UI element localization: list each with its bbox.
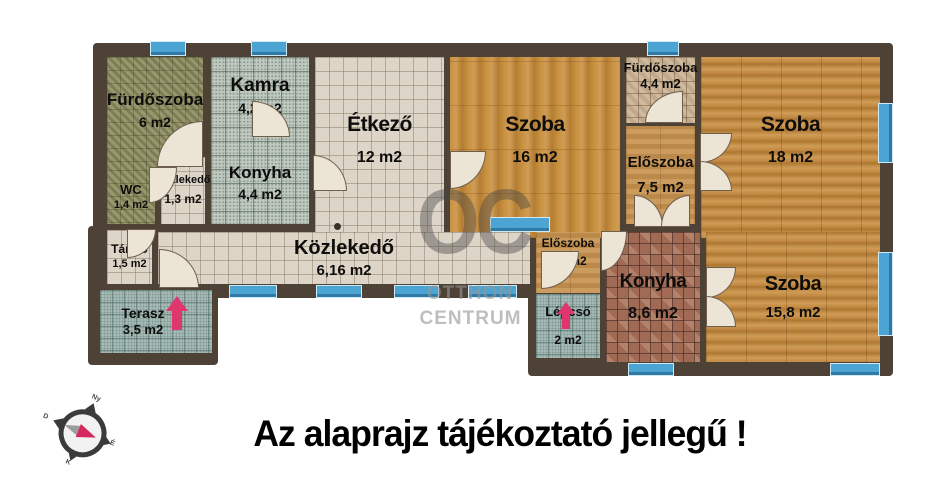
room-area: 6,16 m2 <box>316 262 371 279</box>
window-bedroom158-right <box>878 252 893 336</box>
room-label: Szoba <box>761 113 820 137</box>
window-corridor-2 <box>316 285 362 298</box>
room-area: 3,5 m2 <box>123 323 163 338</box>
room-label: Előszoba <box>628 154 694 171</box>
door-hinge-dot <box>334 223 341 230</box>
room-label: Étkező <box>347 113 412 137</box>
room-area: 18 m2 <box>768 149 813 167</box>
room-label: WC <box>120 183 142 198</box>
room-wc: WC 1,4 m2 <box>107 170 155 224</box>
window-bathroom44-top <box>647 41 679 56</box>
room-label: Előszoba <box>542 237 595 251</box>
compass-label-left: D <box>42 413 49 421</box>
room-area: 1,3 m2 <box>164 193 201 207</box>
room-area: 16 m2 <box>512 149 557 167</box>
room-label: Konyha <box>229 163 291 183</box>
room-area: 1,5 m2 <box>112 258 146 271</box>
room-label: Terasz <box>121 305 164 321</box>
window-bedroom158-bottom <box>830 363 880 376</box>
room-area: 7,5 m2 <box>637 179 684 196</box>
room-area: 15,8 m2 <box>765 304 820 321</box>
room-area: 8,6 m2 <box>628 305 678 323</box>
window-bedroom16-bottom <box>490 217 550 232</box>
window-corridor-4 <box>468 285 517 298</box>
room-area: 4,4 m2 <box>640 77 680 92</box>
watermark-line2: CENTRUM <box>398 308 543 330</box>
room-label: Szoba <box>765 273 821 296</box>
room-label: Fürdőszoba <box>624 61 698 76</box>
floorplan-page: Fürdőszoba 6 m2 Kamra 4,2 m2 Étkező 12 m… <box>0 0 939 500</box>
room-area: 2 m2 <box>554 334 581 348</box>
window-bathroom6-top <box>150 41 186 56</box>
window-corridor-3 <box>394 285 439 298</box>
compass-icon: Ny É K D <box>40 390 123 473</box>
room-bedroom-158: Szoba 15,8 m2 <box>706 232 880 362</box>
room-label: Fürdőszoba <box>107 90 203 110</box>
room-bedroom-16: Szoba 16 m2 <box>450 57 620 238</box>
room-area: 12 m2 <box>357 149 402 167</box>
window-bedroom18-right <box>878 103 893 163</box>
room-terrace: Terasz 3,5 m2 <box>100 290 212 353</box>
room-label: Közlekedő <box>294 237 394 260</box>
room-label: Konyha <box>620 271 687 293</box>
room-area: 6 m2 <box>139 114 171 130</box>
room-dining: Étkező 12 m2 <box>315 57 444 238</box>
disclaimer-text: Az alaprajz tájékoztató jellegű ! <box>145 413 855 455</box>
room-label: Kamra <box>230 75 289 97</box>
window-corridor-1 <box>229 285 277 298</box>
room-kitchen-44: Konyha 4,4 m2 <box>211 141 309 224</box>
room-area: 1,4 m2 <box>114 199 148 212</box>
window-pantry-top <box>251 41 287 56</box>
room-area: 4,4 m2 <box>238 186 282 202</box>
window-kitchen86-bottom <box>628 363 674 376</box>
room-corridor-616: Közlekedő 6,16 m2 <box>158 232 530 284</box>
room-label: Szoba <box>505 113 564 137</box>
